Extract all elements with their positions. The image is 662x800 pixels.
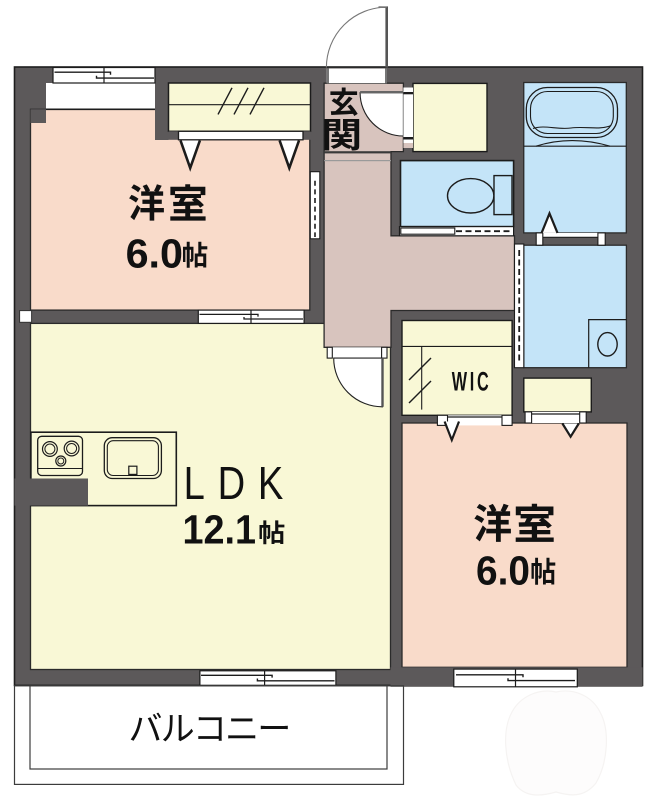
svg-text:6.0: 6.0 (126, 230, 183, 276)
svg-text:LDK: LDK (184, 458, 284, 509)
svg-text:6.0: 6.0 (476, 547, 530, 593)
svg-text:WIC: WIC (452, 366, 492, 396)
svg-text:12.1: 12.1 (183, 507, 257, 553)
